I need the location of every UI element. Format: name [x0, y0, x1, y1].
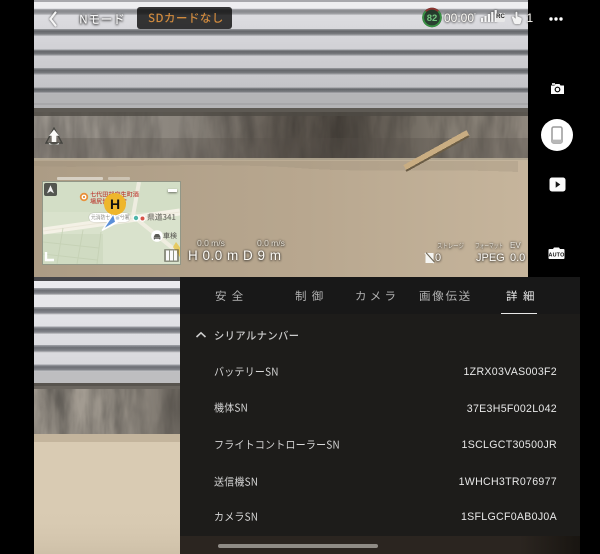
- svg-text:82: 82: [427, 13, 438, 24]
- svg-text:H: H: [110, 196, 120, 212]
- svg-text:AUTO: AUTO: [549, 252, 565, 258]
